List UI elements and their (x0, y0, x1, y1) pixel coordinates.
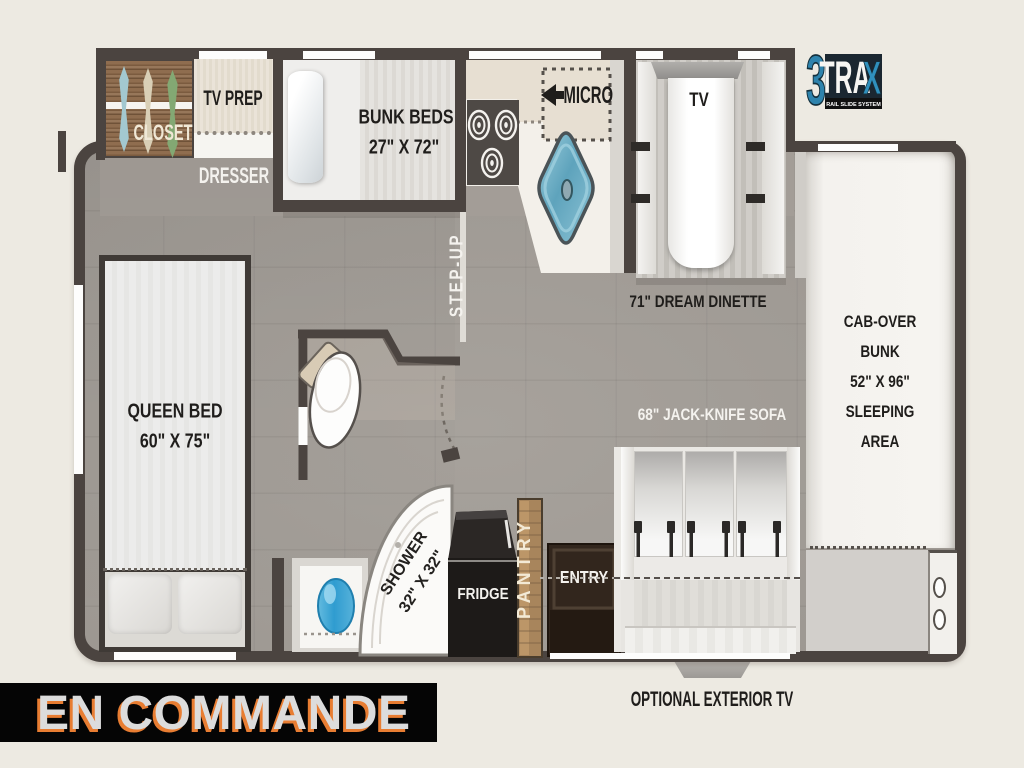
svg-text:RAIL SLIDE SYSTEM: RAIL SLIDE SYSTEM (826, 102, 881, 108)
svg-text:X: X (863, 53, 882, 105)
